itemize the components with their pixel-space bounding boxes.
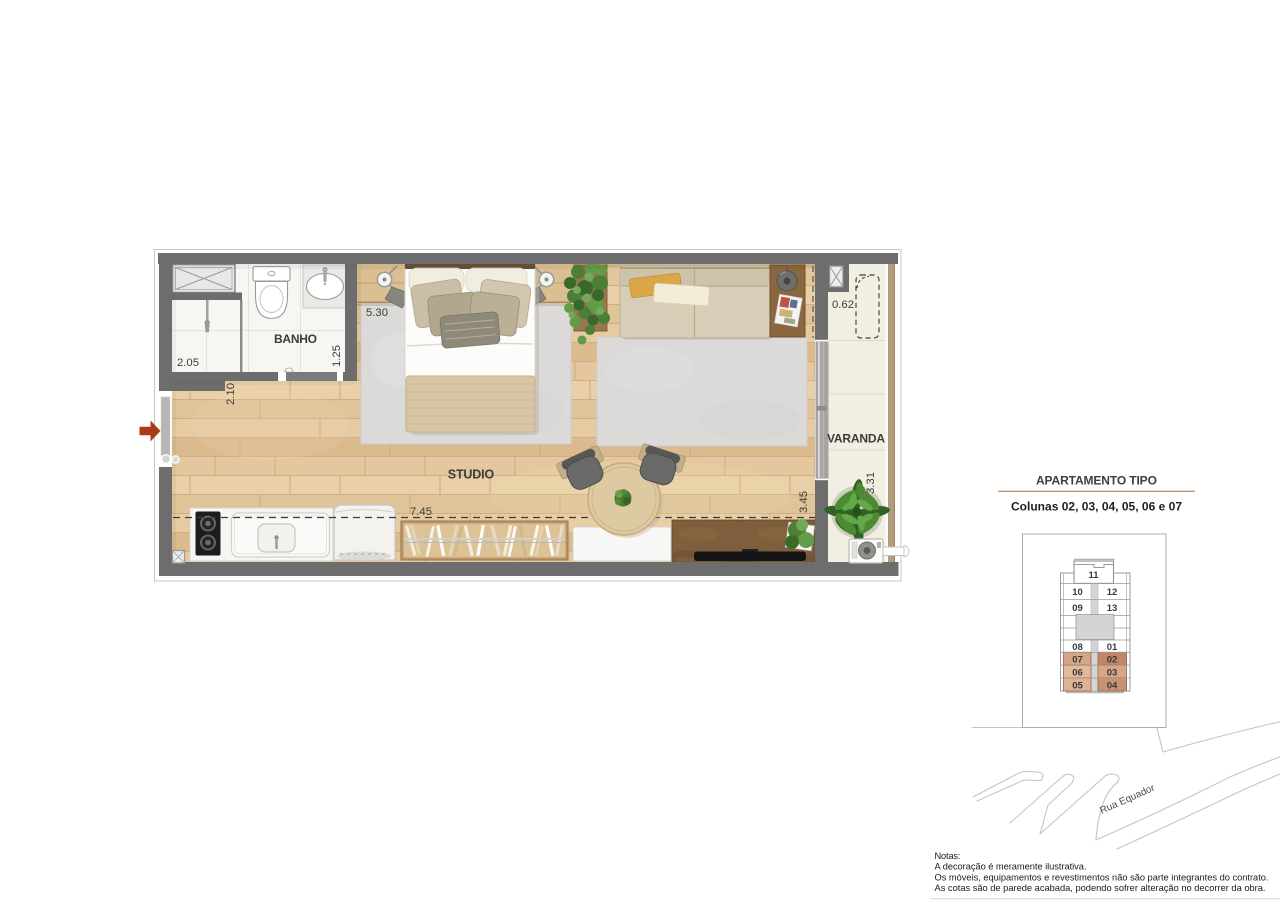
svg-text:08: 08 [1072, 642, 1083, 653]
svg-text:11: 11 [1088, 570, 1099, 581]
svg-text:3.45: 3.45 [798, 491, 810, 513]
svg-text:03: 03 [1107, 668, 1118, 679]
svg-text:02: 02 [1107, 655, 1118, 666]
svg-text:VARANDA: VARANDA [827, 432, 885, 446]
svg-text:2.10: 2.10 [225, 383, 237, 405]
svg-text:07: 07 [1072, 655, 1083, 666]
svg-text:04: 04 [1107, 680, 1118, 691]
svg-text:7.45: 7.45 [410, 506, 432, 518]
svg-text:3.31: 3.31 [865, 472, 877, 494]
svg-text:1.25: 1.25 [331, 345, 343, 367]
svg-text:APARTAMENTO TIPO: APARTAMENTO TIPO [1036, 474, 1157, 488]
svg-text:Colunas 02, 03, 04, 05, 06 e 0: Colunas 02, 03, 04, 05, 06 e 07 [1011, 500, 1182, 514]
svg-text:01: 01 [1107, 642, 1118, 653]
svg-text:09: 09 [1072, 603, 1083, 614]
svg-text:BANHO: BANHO [274, 332, 317, 346]
svg-text:Notas:: Notas: [935, 851, 961, 861]
svg-text:0.62: 0.62 [832, 299, 854, 311]
svg-text:As cotas são de parede acabada: As cotas são de parede acabada, podendo … [935, 883, 1266, 893]
svg-text:5.30: 5.30 [366, 307, 388, 319]
svg-text:Os móveis, equipamentos e reve: Os móveis, equipamentos e revestimentos … [935, 872, 1269, 882]
svg-text:A decoração é meramente ilustr: A decoração é meramente ilustrativa. [935, 862, 1087, 872]
svg-text:STUDIO: STUDIO [448, 468, 495, 482]
svg-text:12: 12 [1107, 587, 1118, 598]
svg-text:10: 10 [1072, 587, 1083, 598]
svg-text:2.05: 2.05 [177, 357, 199, 369]
svg-text:06: 06 [1072, 668, 1083, 679]
svg-text:13: 13 [1107, 603, 1118, 614]
svg-text:05: 05 [1072, 680, 1083, 691]
